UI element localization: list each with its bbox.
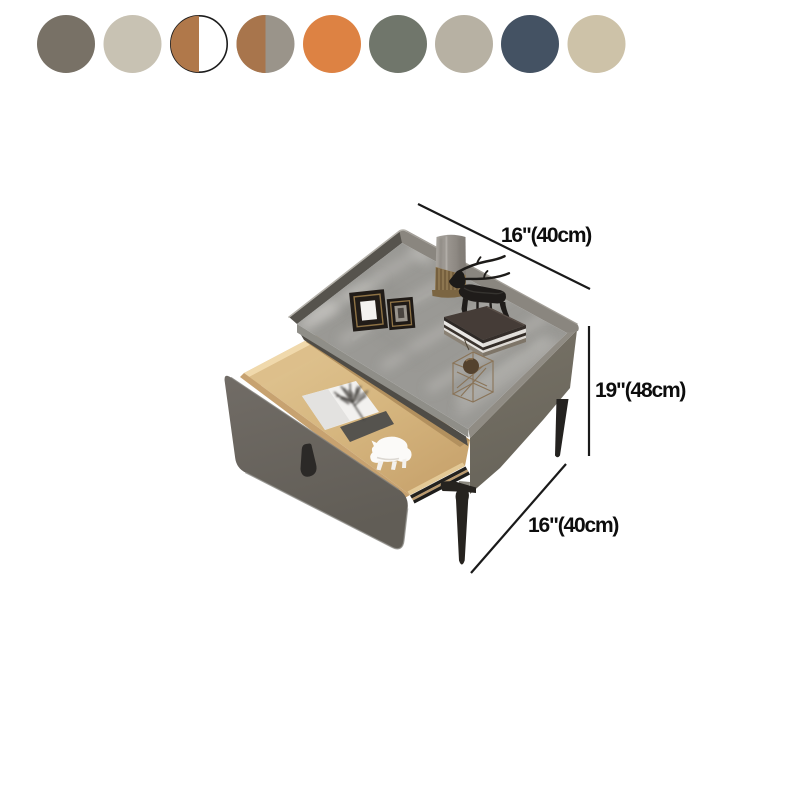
svg-text:19"(48cm): 19"(48cm) bbox=[595, 379, 685, 402]
svg-text:16"(40cm): 16"(40cm) bbox=[501, 224, 591, 247]
svg-text:16"(40cm): 16"(40cm) bbox=[528, 514, 618, 537]
